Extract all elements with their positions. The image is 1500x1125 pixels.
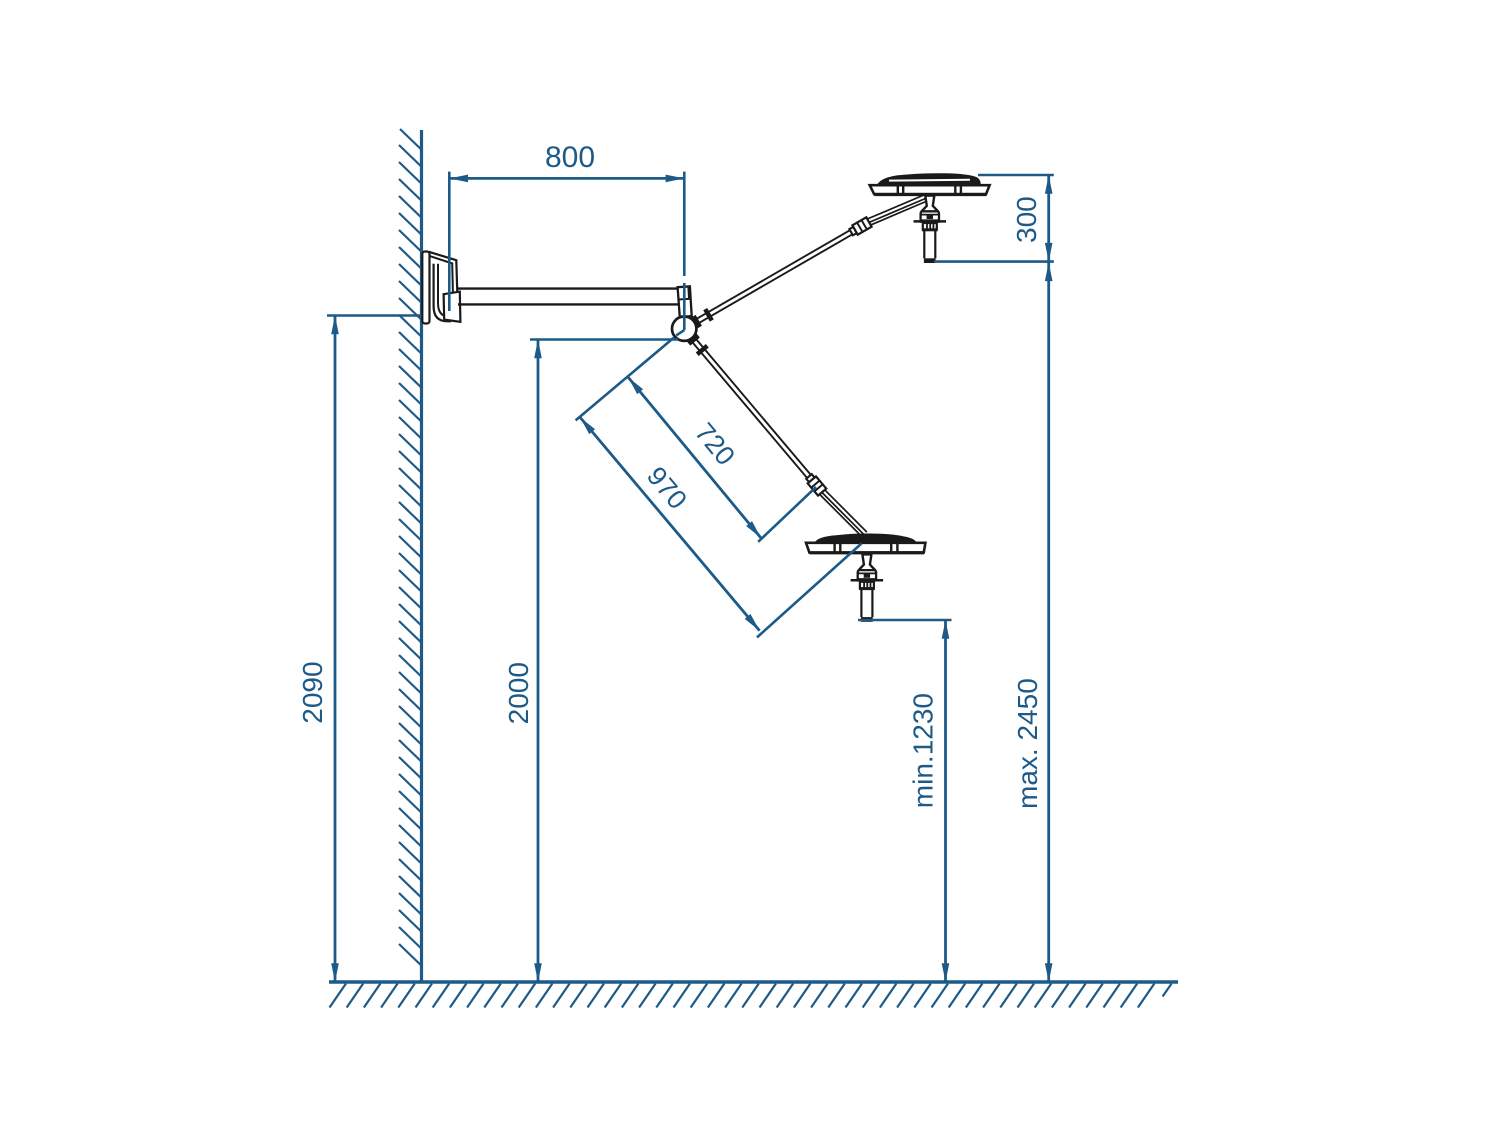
svg-text:2000: 2000 bbox=[503, 662, 534, 724]
svg-text:300: 300 bbox=[1011, 196, 1042, 243]
svg-text:max. 2450: max. 2450 bbox=[1012, 678, 1043, 809]
svg-text:800: 800 bbox=[545, 141, 595, 174]
svg-text:min.1230: min.1230 bbox=[908, 693, 939, 808]
svg-text:970: 970 bbox=[641, 461, 693, 515]
svg-text:720: 720 bbox=[689, 417, 741, 471]
svg-text:2090: 2090 bbox=[297, 661, 328, 723]
